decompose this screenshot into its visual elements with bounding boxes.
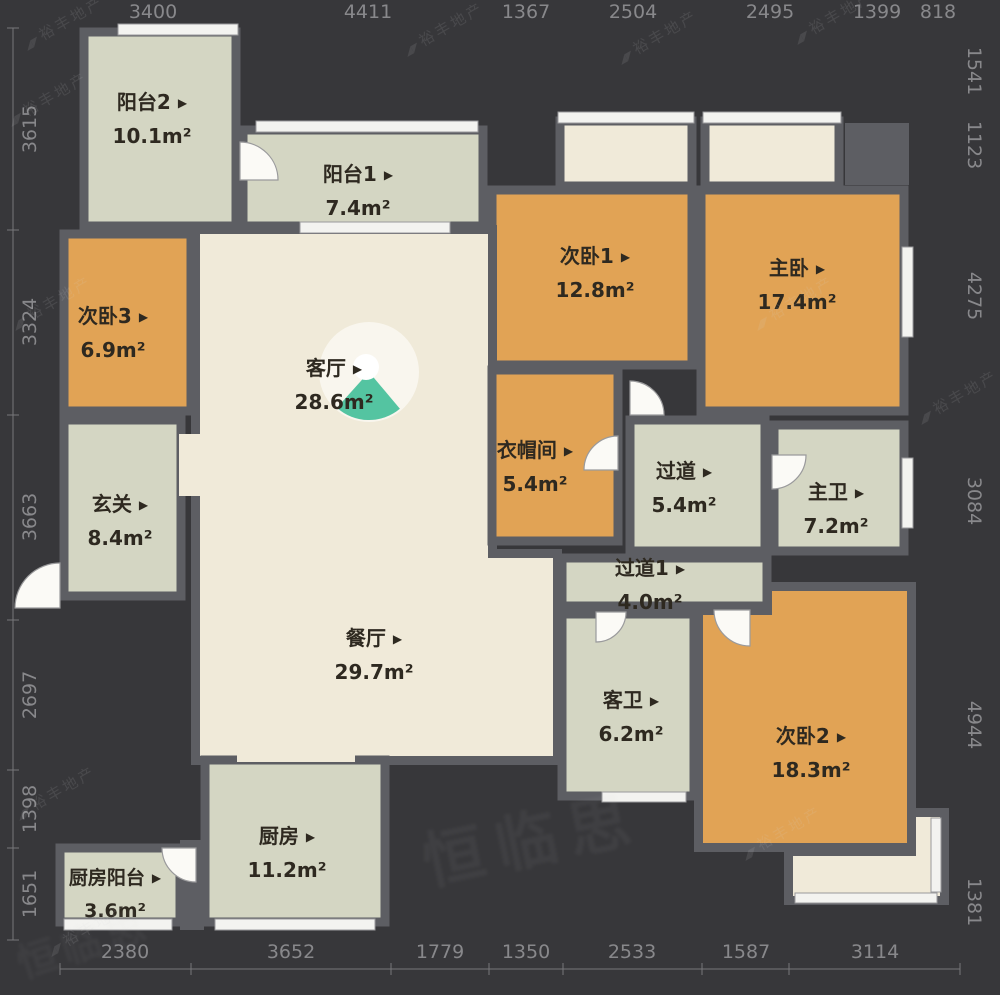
room-marker-icon: ▶ — [650, 694, 659, 708]
dim-bottom-6: 1587 — [722, 941, 770, 963]
room-label-balcony2[interactable]: 阳台2▶ 10.1m² — [113, 86, 192, 153]
room-name: 过道 — [656, 459, 696, 483]
dim-right-3: 4275 — [963, 272, 985, 320]
room-name: 次卧2 — [776, 724, 830, 748]
room-label-closet[interactable]: 衣帽间▶ 5.4m² — [497, 434, 573, 501]
opening-kitchen-dining — [237, 750, 355, 762]
room-area: 5.4m² — [651, 489, 716, 522]
dim-bottom-7: 3114 — [851, 941, 899, 963]
room-name: 次卧1 — [560, 244, 614, 268]
door-entry — [15, 563, 60, 608]
room-area: 7.4m² — [323, 192, 393, 225]
room-label-corridor[interactable]: 过道▶ 5.4m² — [651, 455, 716, 522]
window-balcony2-top — [118, 24, 238, 35]
window-bay-bottom — [795, 893, 937, 903]
dim-bottom-2: 3652 — [267, 941, 315, 963]
dim-top-7: 818 — [920, 1, 956, 23]
window-master-right — [902, 247, 913, 337]
dim-right-1: 1541 — [963, 47, 985, 95]
room-marker-icon: ▶ — [353, 362, 362, 376]
dim-left-3: 3663 — [19, 493, 41, 541]
room-marker-icon: ▶ — [703, 465, 712, 479]
room-area: 7.2m² — [803, 510, 868, 543]
room-label-guestbath[interactable]: 客卫▶ 6.2m² — [598, 684, 663, 751]
room-area: 6.2m² — [598, 718, 663, 751]
window-kitchen-bottom — [215, 919, 375, 930]
room-marker-icon: ▶ — [139, 498, 148, 512]
room-name: 玄关 — [92, 492, 132, 516]
room-label-hall[interactable]: 玄关▶ 8.4m² — [87, 488, 152, 555]
room-label-bedroom3[interactable]: 次卧3▶ 6.9m² — [78, 300, 148, 367]
room-name: 客卫 — [603, 688, 643, 712]
dim-top-1: 3400 — [129, 1, 177, 23]
room-name: 阳台2 — [117, 90, 171, 114]
room-area: 29.7m² — [335, 656, 414, 689]
room-name: 主卫 — [808, 480, 848, 504]
room-name: 餐厅 — [346, 626, 386, 650]
dim-right-6: 1381 — [963, 878, 985, 926]
room-area: 10.1m² — [113, 120, 192, 153]
room-area: 28.6m² — [295, 386, 374, 419]
window-bay2-top — [703, 112, 841, 123]
room-label-bedroom1[interactable]: 次卧1▶ 12.8m² — [556, 240, 635, 307]
room-marker-icon: ▶ — [152, 871, 161, 885]
room-name: 次卧3 — [78, 304, 132, 328]
room-label-bedroom2[interactable]: 次卧2▶ 18.3m² — [772, 720, 851, 787]
dim-left-6: 1651 — [19, 870, 41, 918]
window-balcony1-top — [256, 121, 478, 132]
room-marker-icon: ▶ — [621, 250, 630, 264]
room-name: 衣帽间 — [497, 438, 557, 462]
bay-window-top-left-shape — [560, 121, 692, 186]
wall-block-top-right — [845, 123, 909, 185]
room-marker-icon: ▶ — [676, 562, 685, 576]
room-name: 厨房阳台 — [69, 867, 145, 889]
opening-hall-dining — [179, 434, 203, 496]
dim-bottom-3: 1779 — [416, 941, 464, 963]
room-name: 阳台1 — [323, 162, 377, 186]
door-master — [630, 381, 664, 415]
room-marker-icon: ▶ — [178, 96, 187, 110]
dim-right-4: 3084 — [963, 477, 985, 525]
room-marker-icon: ▶ — [306, 830, 315, 844]
room-area: 4.0m² — [615, 586, 685, 619]
bay-window-top-right-shape — [705, 121, 839, 186]
room-marker-icon: ▶ — [393, 632, 402, 646]
window-bay1-top — [558, 112, 694, 123]
window-masterbath-right — [902, 458, 913, 528]
room-area: 12.8m² — [556, 274, 635, 307]
room-marker-icon: ▶ — [384, 168, 393, 182]
room-name: 过道1 — [615, 556, 669, 580]
room-label-living[interactable]: 客厅▶ 28.6m² — [295, 352, 374, 419]
dim-left-4: 2697 — [19, 671, 41, 719]
dim-top-3: 1367 — [502, 1, 550, 23]
room-marker-icon: ▶ — [837, 730, 846, 744]
dim-bottom-4: 1350 — [502, 941, 550, 963]
room-marker-icon: ▶ — [855, 486, 864, 500]
room-label-kitchen[interactable]: 厨房▶ 11.2m² — [248, 820, 327, 887]
room-label-balcony1[interactable]: 阳台1▶ 7.4m² — [323, 158, 393, 225]
floorplan-canvas: 3400 4411 1367 2504 2495 1399 818 2380 3… — [0, 0, 1000, 995]
dim-top-5: 2495 — [746, 1, 794, 23]
room-label-corridor1[interactable]: 过道1▶ 4.0m² — [615, 552, 685, 619]
room-marker-icon: ▶ — [564, 444, 573, 458]
room-name: 主卧 — [769, 256, 809, 280]
dim-bottom-5: 2533 — [608, 941, 656, 963]
dim-top-2: 4411 — [344, 1, 392, 23]
dim-top-4: 2504 — [609, 1, 657, 23]
room-marker-icon: ▶ — [139, 310, 148, 324]
room-area: 5.4m² — [497, 468, 573, 501]
room-area: 18.3m² — [772, 754, 851, 787]
room-name: 客厅 — [306, 356, 346, 380]
room-name: 厨房 — [259, 824, 299, 848]
window-bay-right — [931, 818, 941, 892]
room-area: 8.4m² — [87, 522, 152, 555]
room-label-dining[interactable]: 餐厅▶ 29.7m² — [335, 622, 414, 689]
room-label-masterbath[interactable]: 主卫▶ 7.2m² — [803, 476, 868, 543]
room-area: 11.2m² — [248, 854, 327, 887]
dim-right-5: 4944 — [963, 701, 985, 749]
dim-right-2: 1123 — [963, 121, 985, 169]
room-area: 6.9m² — [78, 334, 148, 367]
